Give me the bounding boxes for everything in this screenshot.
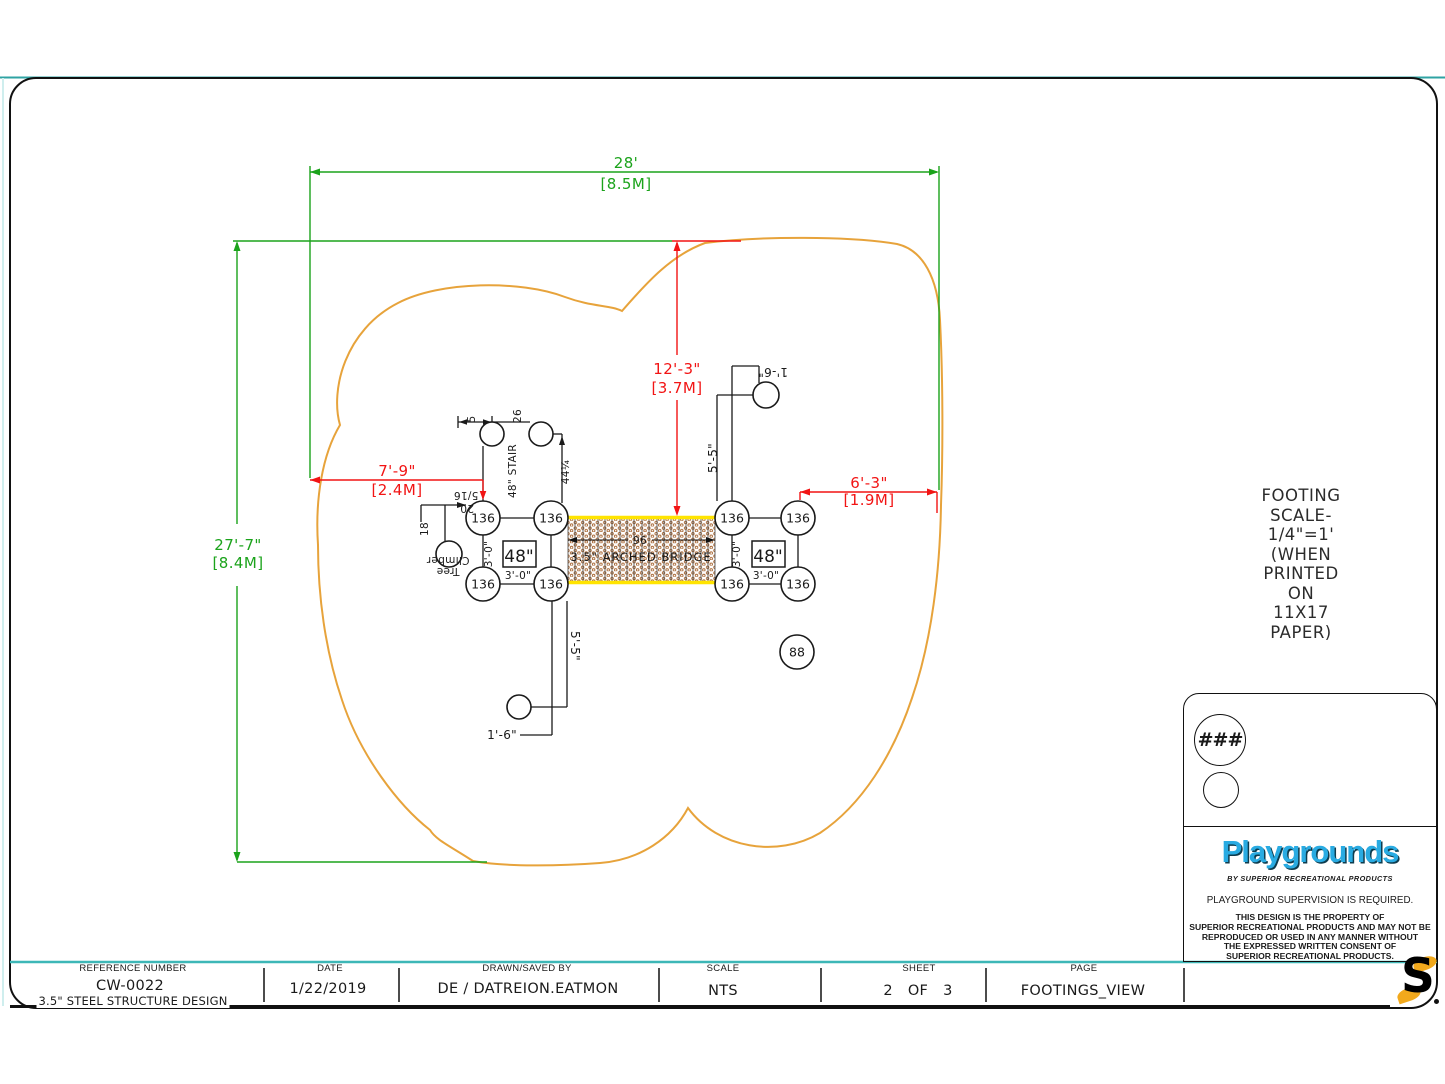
dim-width-m: [8.5M] (601, 175, 652, 193)
footing-88: 88 (789, 645, 805, 660)
dim-post-spacing-right-h: 3'-0" (753, 570, 779, 582)
brand-tagline: BY SUPERIOR RECREATIONAL PRODUCTS (1184, 874, 1436, 883)
dim-post-spacing-left-v: 3'-0" (483, 541, 495, 567)
dim-one-six-top: 1'-6" (758, 365, 788, 379)
s-logo-dot (1434, 999, 1439, 1004)
overall-dimension-arrows (234, 169, 940, 863)
dim-height-m: [8.4M] (213, 554, 264, 572)
dim-five-five-left: 5'-5" (568, 631, 582, 661)
dim-left-m: [2.4M] (372, 481, 423, 499)
dim-right-m: [1.9M] (844, 491, 895, 509)
dim-left-ft: 7'-9" (378, 462, 416, 480)
reference-number-value: CW-0022 (96, 978, 164, 994)
note-line: 11X17 (1238, 603, 1364, 623)
date-label: DATE (317, 963, 343, 974)
bridge-label: 3.5" ARCHED BRIDGE (570, 550, 711, 564)
footing-136: 136 (786, 577, 810, 592)
svg-text:Climber: Climber (426, 554, 469, 566)
design-note: 3.5" STEEL STRUCTURE DESIGN (37, 994, 230, 1008)
scale-value: NTS (708, 983, 738, 999)
dim-drop-ft: 12'-3" (653, 360, 700, 378)
tree-climber-label: Tree Climber (426, 554, 469, 577)
dim-post-spacing-left-h: 3'-0" (505, 570, 531, 582)
drawn-by-label: DRAWN/SAVED BY (482, 963, 571, 974)
dim-height-ft: 27'-7" (214, 536, 261, 554)
note-line: SCALE- (1238, 506, 1364, 526)
date-value: 1/22/2019 (289, 981, 366, 997)
deck-label-left: 48" (504, 547, 533, 567)
dim-right-ft: 6'-3" (850, 474, 888, 492)
note-line: PAPER) (1238, 623, 1364, 643)
footing-136: 136 (471, 577, 495, 592)
dim-stair-44: 44¼ (560, 460, 572, 484)
dim-stair-26: 26 (512, 409, 524, 423)
reference-number-label: REFERENCE NUMBER (79, 963, 186, 974)
dim-stair-label: 48" STAIR (507, 444, 519, 498)
footing-136: 136 (471, 511, 495, 526)
footing-scale-note: FOOTING SCALE- 1/4"=1' (WHEN PRINTED ON … (1238, 486, 1364, 642)
note-line: 1/4"=1' (1238, 525, 1364, 545)
note-line: PRINTED (1238, 564, 1364, 584)
sheet-label: SHEET (902, 963, 935, 974)
footing-136: 136 (720, 577, 744, 592)
overall-dimensions (233, 166, 939, 862)
footing-136: 136 (539, 511, 563, 526)
superior-s-logo: S (1396, 955, 1442, 1011)
footing-136: 136 (539, 577, 563, 592)
dim-one-six-bottom: 1'-6" (487, 728, 517, 742)
dim-tree-516: 5/16 (454, 489, 479, 501)
dim-drop-m: [3.7M] (652, 379, 703, 397)
badge-circle: ### (1194, 714, 1246, 766)
note-line: ON (1238, 584, 1364, 604)
scale-label: SCALE (707, 963, 740, 974)
drawn-by-value: DE / DATREION.EATMON (438, 981, 619, 997)
deck-label-right: 48" (753, 547, 782, 567)
s-logo-letter: S (1401, 949, 1435, 1004)
empty-circle (1203, 772, 1239, 808)
sheet-value: 2 OF 3 (883, 983, 952, 999)
dim-post-spacing-right-v: 3'-0" (731, 541, 743, 567)
dim-five-five-right: 5'-5" (706, 443, 720, 473)
dim-stair-5: 5 (466, 416, 478, 423)
dim-tree-18: 18 (419, 522, 431, 536)
note-line: FOOTING (1238, 486, 1364, 506)
approval-section: ### (1184, 694, 1436, 827)
dim-width-ft: 28' (614, 154, 638, 172)
footing-136: 136 (720, 511, 744, 526)
footing-136: 136 (786, 511, 810, 526)
supervision-note: PLAYGROUND SUPERVISION IS REQUIRED. (1184, 895, 1436, 906)
brand-block: ### Playgrounds BY SUPERIOR RECREATIONAL… (1183, 693, 1437, 962)
note-line: (WHEN (1238, 545, 1364, 565)
page-label: PAGE (1071, 963, 1098, 974)
page-value: FOOTINGS_VIEW (1021, 983, 1145, 999)
playgrounds-logo: Playgrounds (1184, 834, 1436, 870)
bridge-width-label: 96 (633, 535, 647, 547)
